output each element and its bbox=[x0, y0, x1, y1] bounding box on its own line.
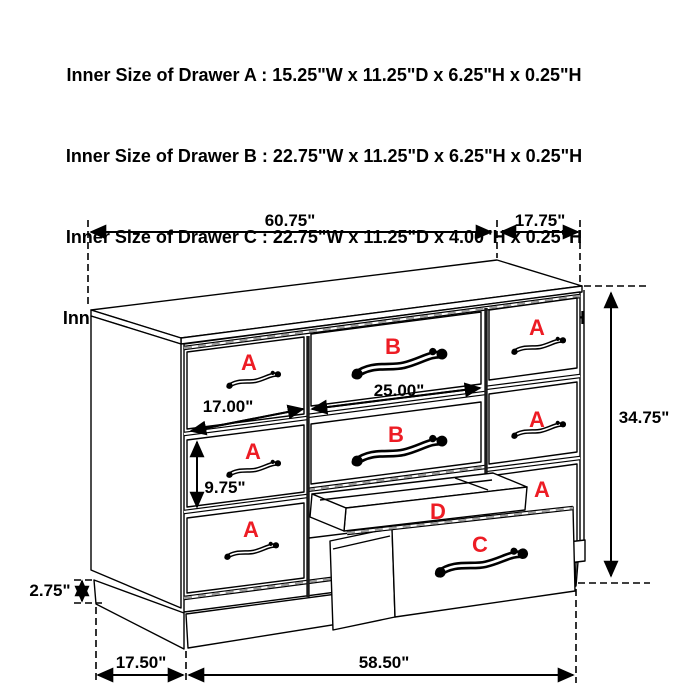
label-drawer-c: C bbox=[472, 532, 488, 557]
drawer-c-side bbox=[330, 528, 395, 630]
dim-bottom-depth: 17.50" bbox=[116, 653, 167, 672]
dresser-line-drawing: A A A B B A A A D C bbox=[0, 0, 700, 700]
dim-height: 34.75" bbox=[619, 408, 670, 427]
label-tray-d: D bbox=[430, 499, 446, 524]
dim-a-width: 17.00" bbox=[203, 397, 254, 416]
label-right-a2: A bbox=[529, 407, 545, 432]
label-right-a1: A bbox=[529, 315, 545, 340]
label-mid-b1: B bbox=[385, 334, 401, 359]
label-right-a3: A bbox=[534, 477, 550, 502]
dim-b-width: 25.00" bbox=[374, 381, 425, 400]
cabinet-left-side bbox=[91, 316, 181, 608]
dim-top-depth: 17.75" bbox=[515, 211, 566, 230]
dim-a-height: 9.75" bbox=[204, 478, 245, 497]
label-left-a1: A bbox=[241, 350, 257, 375]
dresser-dimension-diagram: { "header": { "lines": [ "Inner Size of … bbox=[0, 0, 700, 700]
label-mid-b2: B bbox=[388, 422, 404, 447]
dim-top-width: 60.75" bbox=[265, 211, 316, 230]
label-left-a2: A bbox=[245, 439, 261, 464]
dim-base-height: 2.75" bbox=[29, 581, 70, 600]
label-left-a3: A bbox=[243, 517, 259, 542]
dim-bottom-width: 58.50" bbox=[359, 653, 410, 672]
